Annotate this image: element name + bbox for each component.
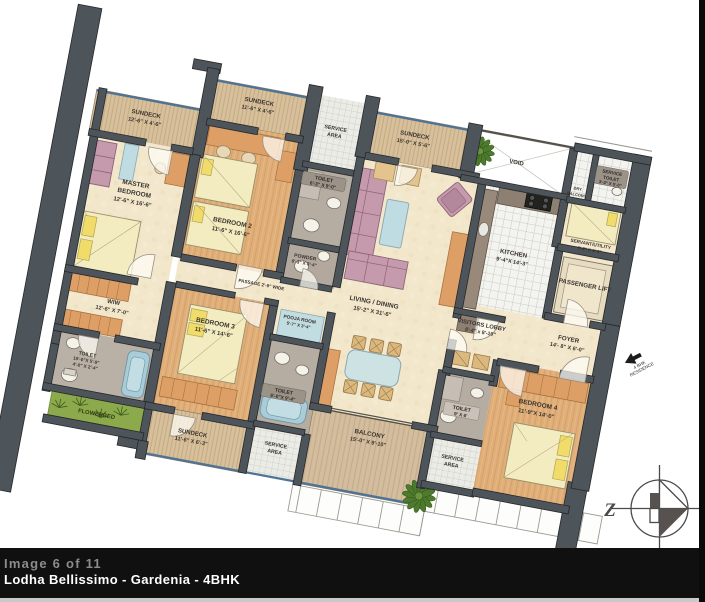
svg-text:Z: Z	[603, 500, 616, 521]
svg-text:Lodha Bellissimo - Gardenia -: Lodha Bellissimo - Gardenia - 4BHK	[4, 572, 240, 587]
svg-text:Image 6 of 11: Image 6 of 11	[4, 556, 102, 571]
